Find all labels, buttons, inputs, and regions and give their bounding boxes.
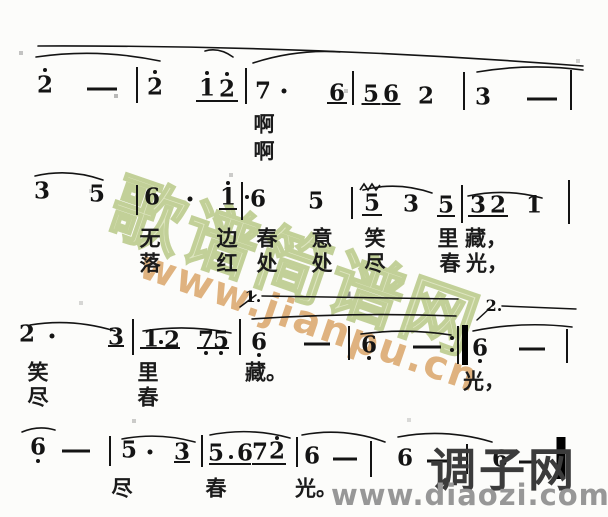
barline	[136, 185, 138, 215]
dot	[275, 436, 279, 440]
dot	[478, 359, 482, 363]
note-digit: 2	[269, 440, 285, 463]
duration-dash	[519, 348, 545, 351]
lyric-syllable: 藏，	[465, 228, 507, 249]
note-digit: 6	[361, 334, 377, 357]
lyric-syllable: 边	[217, 228, 238, 249]
dot	[153, 70, 157, 74]
note-digit: 2	[147, 76, 163, 99]
duration-dash	[87, 88, 117, 91]
note-digit: 6	[237, 442, 253, 465]
lyric-syllable: 光，	[463, 371, 505, 392]
barline	[463, 72, 465, 110]
note-digit: 6	[251, 331, 267, 354]
volta-label: 2.	[486, 298, 503, 314]
beam-underline	[108, 345, 124, 347]
dot	[229, 455, 233, 459]
lyric-syllable: 春	[206, 478, 227, 499]
duration-dash	[304, 343, 330, 346]
beam-underline	[219, 208, 237, 210]
note-digit: 3	[403, 193, 419, 216]
beam-underline	[196, 100, 238, 102]
note-digit: 3	[475, 86, 491, 109]
note-digit: 5	[121, 439, 137, 462]
volta-label: 1.	[245, 289, 262, 305]
dot	[226, 181, 230, 185]
lyric-syllable: 啊	[254, 114, 275, 135]
beam-underline	[197, 347, 229, 349]
barline	[136, 67, 138, 103]
lyric-syllable: 啊	[254, 141, 275, 162]
barline	[132, 319, 134, 355]
beam-underline	[327, 102, 347, 104]
note-digit: 5	[308, 190, 324, 213]
dot	[50, 334, 55, 339]
lyric-syllable: 春	[440, 253, 461, 274]
beam-underline	[209, 463, 251, 465]
lyric-syllable: 尽	[112, 478, 133, 499]
beam-underline	[468, 215, 508, 217]
barline	[457, 326, 459, 364]
dot	[159, 340, 163, 344]
lyric-syllable: 光，	[466, 253, 508, 274]
beam-underline	[174, 461, 190, 463]
note-digit: 5	[364, 192, 380, 215]
dot	[205, 71, 209, 75]
note-digit: 2	[37, 74, 53, 97]
lyric-syllable: 处	[312, 253, 333, 274]
barline	[296, 437, 298, 467]
barline	[570, 70, 572, 110]
dot	[36, 459, 40, 463]
dot	[219, 351, 223, 355]
beam-underline	[382, 103, 401, 105]
beam-underline	[252, 463, 286, 465]
note-digit: 6	[250, 188, 266, 211]
dot	[450, 348, 454, 352]
barline	[348, 326, 350, 360]
note-digit: 6	[304, 445, 320, 468]
lyric-syllable: 春	[138, 387, 159, 408]
dot	[245, 195, 249, 199]
dot	[450, 336, 454, 340]
lyric-syllable: 尽	[365, 253, 386, 274]
note-digit: 2	[490, 194, 506, 217]
duration-dash	[333, 458, 357, 461]
duration-dash	[62, 450, 90, 453]
corner-watermark-site-url: www.diaozi.com	[331, 478, 608, 512]
dot	[204, 351, 208, 355]
dot	[225, 72, 229, 76]
barline	[461, 185, 463, 223]
note-digit: 5	[208, 442, 224, 465]
lyric-syllable: 藏。	[245, 362, 287, 383]
barline	[239, 319, 241, 355]
barline	[241, 182, 243, 220]
barline	[352, 71, 354, 105]
duration-dash	[527, 98, 557, 101]
lyric-syllable: 里	[138, 362, 159, 383]
note-digit: 3	[470, 194, 486, 217]
thick-barline	[462, 325, 468, 365]
note-digit: 2	[418, 85, 434, 108]
lyric-syllable: 笑	[28, 362, 49, 383]
lyric-syllable: 无	[140, 228, 161, 249]
note-digit: 1	[526, 194, 542, 217]
lyric-syllable: 里	[438, 228, 459, 249]
lyric-syllable: 意	[312, 228, 333, 249]
beam-underline	[437, 215, 455, 217]
note-digit: 7	[252, 441, 268, 464]
dot	[188, 197, 193, 202]
note-digit: 5	[438, 194, 454, 217]
barline	[568, 180, 570, 224]
note-digit: 3	[34, 180, 50, 203]
beam-underline	[140, 347, 180, 349]
barline	[370, 441, 372, 477]
note-digit: 5	[89, 183, 105, 206]
beam-underline	[362, 214, 382, 216]
dot	[148, 450, 153, 455]
note-digit: 6	[472, 337, 488, 360]
barline	[109, 436, 111, 466]
note-digit: 2	[19, 323, 35, 346]
dot	[43, 68, 47, 72]
beam-underline	[362, 103, 381, 105]
note-digit: 6	[30, 436, 46, 459]
lyric-syllable: 春	[257, 228, 278, 249]
lyric-syllable: 笑	[365, 228, 386, 249]
note-digit: 7	[255, 80, 271, 103]
barline	[351, 187, 353, 219]
barline	[566, 329, 568, 363]
dot	[367, 356, 371, 360]
note-digit: 1	[199, 77, 215, 100]
lyric-syllable: 处	[257, 253, 278, 274]
lyric-syllable: 落	[140, 253, 161, 274]
lyric-syllable: 红	[217, 253, 238, 274]
dot	[282, 89, 287, 94]
dot	[257, 353, 261, 357]
sheet-music-page: 歌谱简谱网 www.jianpu.cn 2212765623啊啊35616553…	[0, 0, 608, 517]
barline	[201, 435, 203, 467]
lyric-syllable: 尽	[28, 387, 49, 408]
note-digit: 2	[219, 78, 235, 101]
barline	[245, 68, 247, 104]
note-digit: 6	[144, 186, 160, 209]
note-digit: 1	[220, 186, 236, 209]
duration-dash	[413, 346, 441, 349]
note-digit: 6	[397, 447, 413, 470]
